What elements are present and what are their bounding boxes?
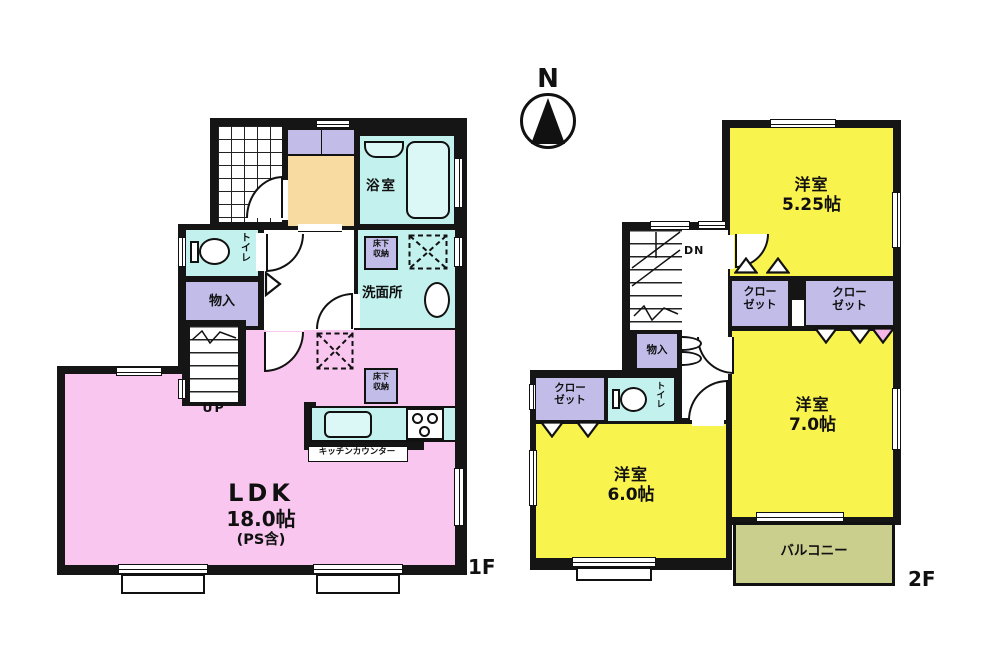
closet-door-mark: [734, 257, 758, 274]
window: [118, 564, 208, 574]
closet-b-label: クローゼット: [806, 286, 893, 312]
bedroom-70-name: 洋室: [732, 396, 893, 414]
floor-hatch-icon: [316, 332, 354, 370]
closet-a-text: クローゼット: [740, 286, 780, 311]
door-opening: [266, 321, 304, 331]
washroom-sink: [424, 282, 450, 318]
underfloor-storage-label-ldk: 床下収納: [364, 372, 398, 393]
stairs-up-label: UP: [190, 401, 238, 415]
window: [313, 564, 403, 574]
underfloor-storage-text: 床下収納: [372, 372, 390, 393]
bay-window: [121, 574, 205, 594]
bay-window: [316, 574, 400, 594]
stairs-dn-label: DN: [684, 245, 704, 258]
ldk-note-label: (PS含): [186, 532, 336, 549]
compass-north-label: N: [508, 66, 588, 92]
window: [454, 468, 464, 526]
toilet-label-1f: トイレ: [238, 232, 250, 262]
bedroom-525-name: 洋室: [730, 176, 893, 194]
floor1-label: 1F: [468, 556, 496, 579]
entrance-step-line: [298, 224, 342, 232]
closet-c-label: クローゼット: [536, 382, 604, 406]
toilet-label-2f: トイレ: [654, 381, 664, 408]
underfloor-storage-text: 床下収納: [372, 239, 390, 260]
storage-label-2f: 物入: [637, 344, 677, 356]
door-opening: [256, 233, 264, 271]
closet-door-mark: [766, 257, 790, 274]
toilet-bowl-2f: [620, 387, 647, 412]
closet-door-mark: [814, 327, 838, 344]
window: [529, 384, 536, 410]
closet-c-text: クローゼット: [551, 382, 589, 406]
door-opening: [352, 294, 360, 328]
washroom-label: 洗面所: [362, 286, 403, 302]
balcony-label: バルコニー: [733, 544, 895, 560]
closet-a-label: クローゼット: [732, 286, 788, 311]
floor2-label: 2F: [908, 568, 936, 591]
burner-icon: [412, 413, 423, 424]
ldk-name-label: LDK: [186, 480, 336, 508]
shoe-cabinet-divider: [321, 130, 322, 154]
closet-b-text: クローゼット: [829, 286, 871, 312]
bath-washstand: [364, 141, 404, 158]
bedroom-70-size: 7.0帖: [732, 416, 893, 436]
stair-winder-lines: [630, 230, 682, 330]
underfloor-storage-label-wash: 床下収納: [364, 239, 398, 260]
closet-door-mark: [576, 421, 600, 438]
window: [892, 192, 901, 248]
toilet-bowl-1f: [199, 238, 230, 265]
stove: [406, 408, 444, 440]
window: [756, 512, 844, 522]
compass-icon: [520, 93, 576, 149]
ldk-size-label: 18.0帖: [186, 508, 336, 531]
shoe-cabinet: [288, 130, 354, 156]
window: [178, 237, 186, 267]
floor-hatch-icon: [408, 234, 448, 270]
closet-door-mark: [540, 421, 564, 438]
closet-door-mark: [848, 327, 872, 344]
burner-icon: [427, 413, 438, 424]
bathroom-label: 浴室: [366, 179, 397, 195]
window: [650, 221, 690, 230]
bedroom-60-name: 洋室: [536, 466, 726, 484]
bedroom-525-size: 5.25帖: [730, 196, 893, 216]
closet-divider-gap: [792, 300, 804, 326]
toilet-tank-1f: [190, 241, 199, 263]
window: [698, 221, 726, 229]
window: [454, 158, 463, 208]
storage-label-1f: 物入: [186, 295, 258, 310]
bedroom-60-size: 6.0帖: [536, 486, 726, 506]
toilet-tank-2f: [612, 389, 620, 409]
closet-door-mark-pink: [871, 327, 895, 344]
compass-needle-icon: [531, 98, 565, 144]
bathtub: [406, 141, 450, 219]
window: [178, 379, 186, 399]
bay-window: [576, 567, 652, 581]
window: [572, 557, 656, 567]
window: [116, 367, 162, 376]
stair-break-line: [190, 328, 238, 346]
kitchen-sink: [324, 411, 372, 438]
kitchen-counter-label: キッチンカウンター: [308, 448, 406, 458]
window: [770, 119, 836, 128]
window: [454, 237, 463, 267]
burner-icon: [419, 426, 430, 437]
storage-door-mark: [264, 271, 282, 297]
door-opening: [726, 235, 734, 269]
compass: N: [508, 66, 588, 149]
window: [316, 120, 350, 128]
window: [892, 388, 901, 450]
floorplan-page: N: [0, 0, 1000, 653]
